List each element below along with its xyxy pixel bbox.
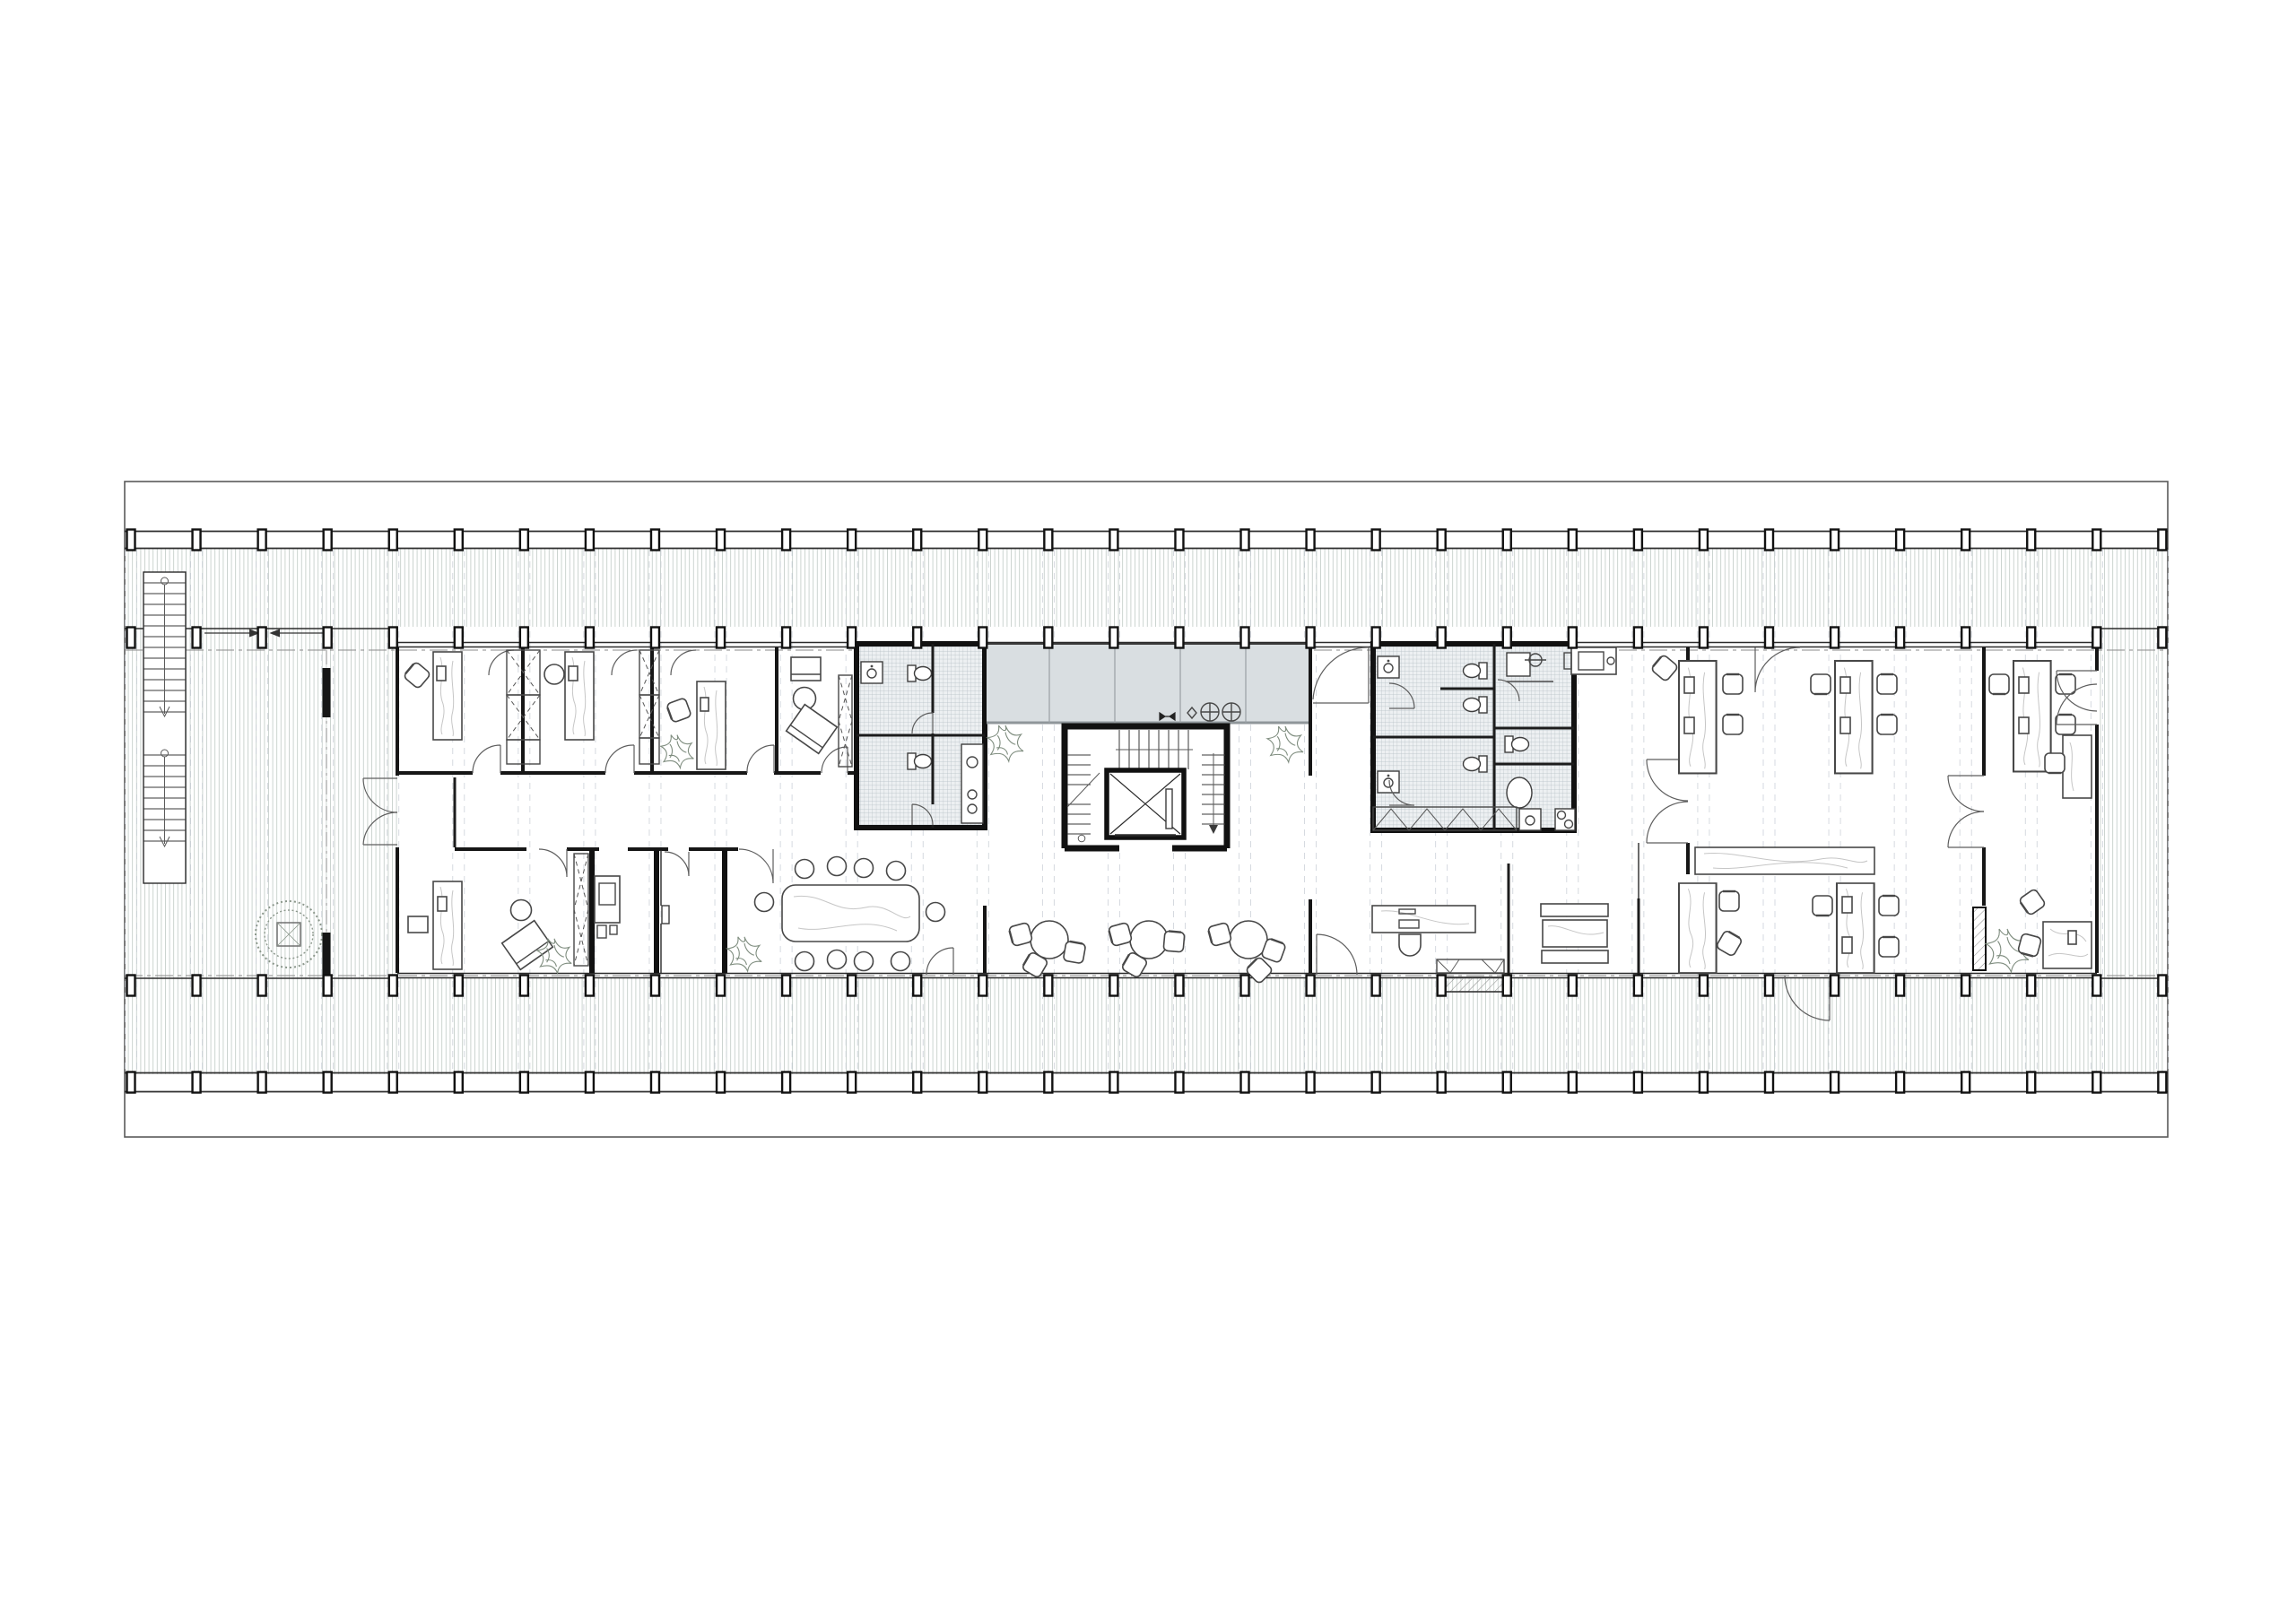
column	[782, 976, 790, 996]
column	[1109, 530, 1118, 551]
column	[2027, 976, 2035, 996]
column	[1241, 976, 1249, 996]
column	[258, 530, 266, 551]
column	[193, 530, 201, 551]
column	[520, 1072, 528, 1093]
column	[913, 628, 921, 648]
elevator	[1107, 770, 1184, 838]
column	[1634, 628, 1642, 648]
column	[782, 628, 790, 648]
column	[978, 530, 987, 551]
column	[1109, 1072, 1118, 1093]
column	[1831, 1072, 1839, 1093]
column	[978, 976, 987, 996]
column	[717, 1072, 725, 1093]
long-work-table	[1695, 847, 1874, 874]
column	[193, 976, 201, 996]
column	[848, 976, 856, 996]
column	[782, 530, 790, 551]
column	[389, 530, 397, 551]
hall-copier	[1564, 647, 1616, 674]
column	[1438, 1072, 1446, 1093]
column	[193, 628, 201, 648]
column	[520, 530, 528, 551]
column	[1831, 628, 1839, 648]
column	[651, 628, 659, 648]
column	[258, 628, 266, 648]
column	[2092, 530, 2100, 551]
column	[848, 628, 856, 648]
external-staircase	[143, 572, 186, 883]
column	[1503, 628, 1511, 648]
column	[455, 1072, 463, 1093]
column	[586, 1072, 594, 1093]
column	[1700, 1072, 1708, 1093]
column	[1961, 976, 1970, 996]
column	[520, 628, 528, 648]
column	[127, 530, 135, 551]
column	[1175, 628, 1183, 648]
column	[1569, 976, 1577, 996]
column	[1700, 976, 1708, 996]
column	[1241, 1072, 1249, 1093]
column	[717, 976, 725, 996]
column	[127, 976, 135, 996]
column	[651, 1072, 659, 1093]
column	[586, 976, 594, 996]
column	[324, 976, 332, 996]
column	[1634, 530, 1642, 551]
column	[1569, 1072, 1577, 1093]
column	[1241, 628, 1249, 648]
column	[1044, 628, 1052, 648]
column	[1044, 976, 1052, 996]
column	[1634, 1072, 1642, 1093]
column	[651, 976, 659, 996]
column	[389, 976, 397, 996]
column	[1307, 530, 1315, 551]
column	[1569, 628, 1577, 648]
column	[1896, 530, 1904, 551]
column	[1569, 530, 1577, 551]
column	[1503, 530, 1511, 551]
column	[1831, 976, 1839, 996]
column	[1634, 976, 1642, 996]
wc-block-west	[857, 644, 985, 828]
column	[2158, 530, 2166, 551]
column	[1961, 628, 1970, 648]
column	[1896, 1072, 1904, 1093]
column	[258, 1072, 266, 1093]
column	[2027, 1072, 2035, 1093]
column	[1307, 976, 1315, 996]
glazed-lightwell-strip	[987, 644, 1309, 723]
column	[586, 628, 594, 648]
column	[848, 1072, 856, 1093]
column	[2092, 976, 2100, 996]
column	[1700, 530, 1708, 551]
column	[193, 1072, 201, 1093]
column	[2158, 1072, 2166, 1093]
column	[258, 976, 266, 996]
column	[848, 530, 856, 551]
column	[2027, 628, 2035, 648]
column	[913, 530, 921, 551]
column	[782, 1072, 790, 1093]
column	[1765, 1072, 1773, 1093]
column	[324, 628, 332, 648]
stair-core	[1065, 726, 1227, 848]
column	[520, 976, 528, 996]
column	[1765, 530, 1773, 551]
bench-table-set	[1541, 904, 1608, 963]
column	[1438, 628, 1446, 648]
column	[1307, 628, 1315, 648]
column	[1372, 1072, 1380, 1093]
column	[324, 1072, 332, 1093]
sanitary-block-east	[1373, 644, 1574, 830]
column	[324, 530, 332, 551]
column	[586, 530, 594, 551]
wc-kitchenette	[961, 744, 983, 823]
column	[2158, 628, 2166, 648]
deck-hatch-region	[125, 548, 2163, 627]
column	[2092, 1072, 2100, 1093]
column	[1175, 1072, 1183, 1093]
column	[127, 1072, 135, 1093]
column	[1438, 530, 1446, 551]
column	[1961, 530, 1970, 551]
column	[455, 976, 463, 996]
column	[1044, 1072, 1052, 1093]
column	[2092, 628, 2100, 648]
column	[389, 1072, 397, 1093]
column	[127, 628, 135, 648]
reception-chair	[1399, 934, 1421, 956]
column	[913, 1072, 921, 1093]
column	[389, 628, 397, 648]
column	[1961, 1072, 1970, 1093]
column	[1372, 976, 1380, 996]
column	[2027, 530, 2035, 551]
deck-hatch-region	[2097, 627, 2163, 1074]
column	[1109, 976, 1118, 996]
column	[717, 530, 725, 551]
reception-desk	[1372, 906, 1475, 933]
column	[1503, 1072, 1511, 1093]
column	[455, 628, 463, 648]
column	[1175, 530, 1183, 551]
column	[978, 628, 987, 648]
column	[1438, 976, 1446, 996]
column	[913, 976, 921, 996]
column	[651, 530, 659, 551]
column	[1044, 530, 1052, 551]
column	[1831, 530, 1839, 551]
column	[1700, 628, 1708, 648]
column	[1503, 976, 1511, 996]
column	[1896, 628, 1904, 648]
column	[1896, 976, 1904, 996]
service-duct	[1973, 907, 1986, 970]
column	[1109, 628, 1118, 648]
column	[717, 628, 725, 648]
column	[1765, 976, 1773, 996]
column	[1241, 530, 1249, 551]
column	[1765, 628, 1773, 648]
column	[1372, 628, 1380, 648]
column	[455, 530, 463, 551]
column	[978, 1072, 987, 1093]
column	[2158, 976, 2166, 996]
column	[1175, 976, 1183, 996]
column	[1307, 1072, 1315, 1093]
floor-plan-svg	[0, 0, 2296, 1623]
drawing-sheet	[0, 0, 2296, 1623]
column	[1372, 530, 1380, 551]
